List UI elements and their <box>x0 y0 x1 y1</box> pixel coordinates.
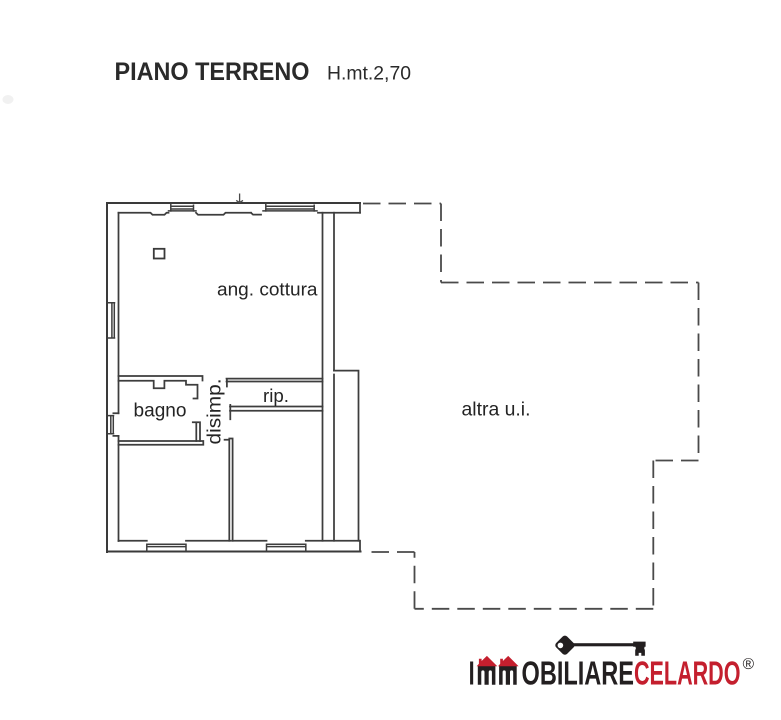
svg-text:CELARDO: CELARDO <box>634 655 741 692</box>
svg-text:rip.: rip. <box>263 385 289 406</box>
svg-text:OBILIARE: OBILIARE <box>522 655 635 692</box>
svg-text:®: ® <box>743 656 755 673</box>
svg-text:altra u.i.: altra u.i. <box>462 399 531 421</box>
svg-text:H.mt.2,70: H.mt.2,70 <box>327 64 411 85</box>
svg-text:bagno: bagno <box>134 401 187 422</box>
svg-text:ang. cottura: ang. cottura <box>217 279 318 300</box>
svg-text:disimp.: disimp. <box>205 379 226 445</box>
svg-text:PIANO TERRENO: PIANO TERRENO <box>115 58 310 86</box>
svg-text:I: I <box>469 655 475 692</box>
